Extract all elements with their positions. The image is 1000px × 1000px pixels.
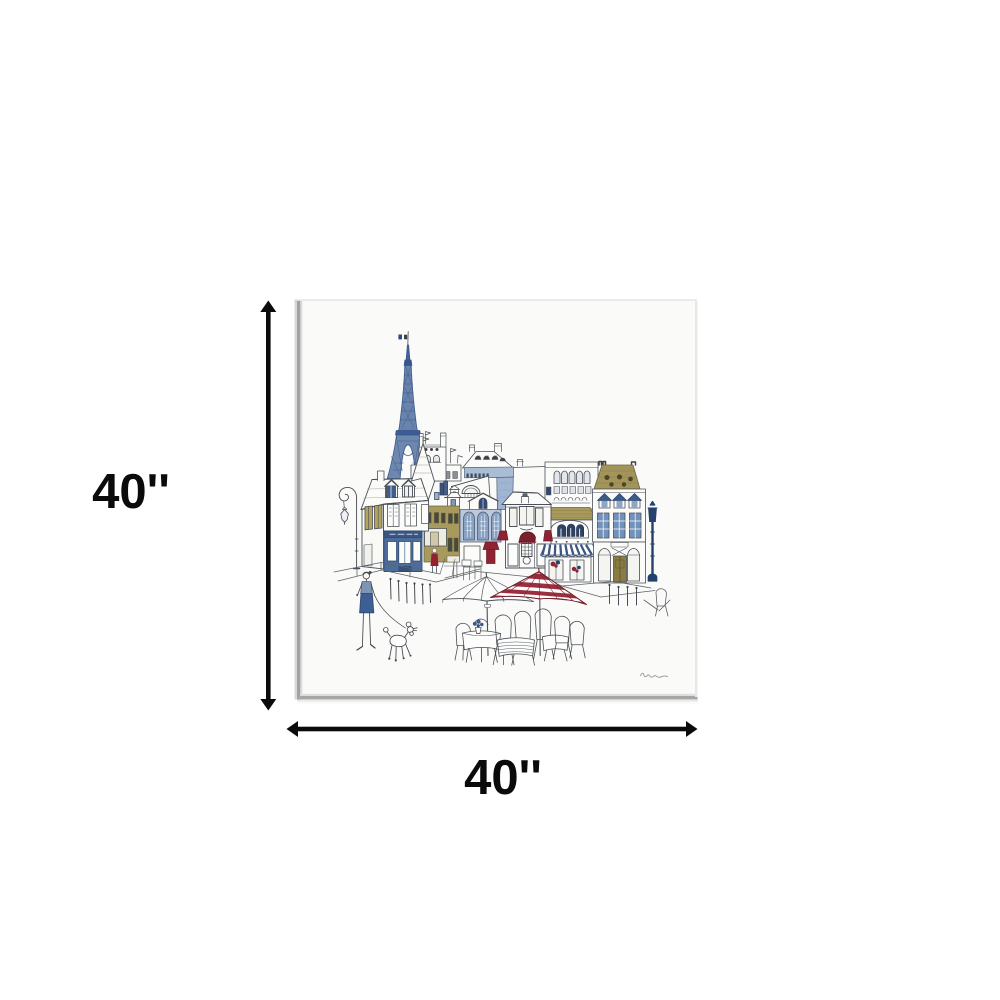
svg-text:40'': 40'' xyxy=(464,751,542,805)
svg-text:40'': 40'' xyxy=(92,465,170,519)
